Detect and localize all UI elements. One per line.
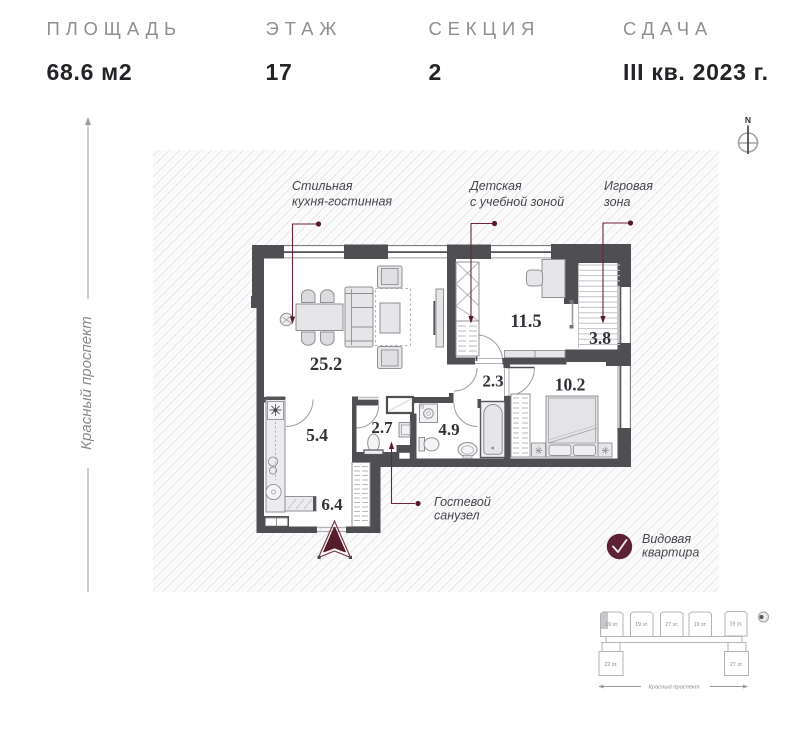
svg-text:19 эт.: 19 эт. (635, 622, 648, 628)
svg-text:N: N (745, 115, 751, 125)
svg-text:Красный проспект: Красный проспект (648, 684, 699, 691)
svg-text:Игровая: Игровая (604, 179, 653, 193)
svg-text:27 эт.: 27 эт. (730, 662, 743, 668)
svg-text:25.2: 25.2 (310, 355, 342, 375)
svg-text:Гостевой: Гостевой (434, 495, 491, 509)
svg-text:4.9: 4.9 (438, 420, 459, 439)
svg-text:19 эт.: 19 эт. (694, 622, 707, 628)
svg-text:Красный проспект: Красный проспект (78, 316, 95, 450)
svg-text:санузел: санузел (434, 509, 480, 523)
svg-text:5.4: 5.4 (306, 425, 328, 445)
svg-text:19 эт.: 19 эт. (730, 622, 743, 628)
svg-text:с учебной зоной: с учебной зоной (470, 195, 564, 209)
svg-text:22 эт.: 22 эт. (605, 662, 618, 668)
svg-text:3.8: 3.8 (589, 328, 611, 348)
svg-text:кухня-гостинная: кухня-гостинная (292, 195, 392, 209)
svg-text:Видовая: Видовая (642, 532, 691, 546)
svg-text:2.3: 2.3 (482, 372, 503, 391)
svg-text:Стильная: Стильная (292, 179, 353, 193)
svg-text:зона: зона (603, 195, 631, 209)
svg-text:10.2: 10.2 (555, 375, 586, 395)
svg-text:Детская: Детская (468, 179, 522, 193)
svg-text:2.7: 2.7 (371, 418, 393, 437)
svg-text:6.4: 6.4 (321, 495, 343, 514)
svg-text:11.5: 11.5 (510, 312, 541, 332)
svg-text:27 эт.: 27 эт. (665, 622, 678, 628)
svg-text:квартира: квартира (642, 546, 699, 560)
svg-text:19 эт.: 19 эт. (605, 622, 618, 628)
